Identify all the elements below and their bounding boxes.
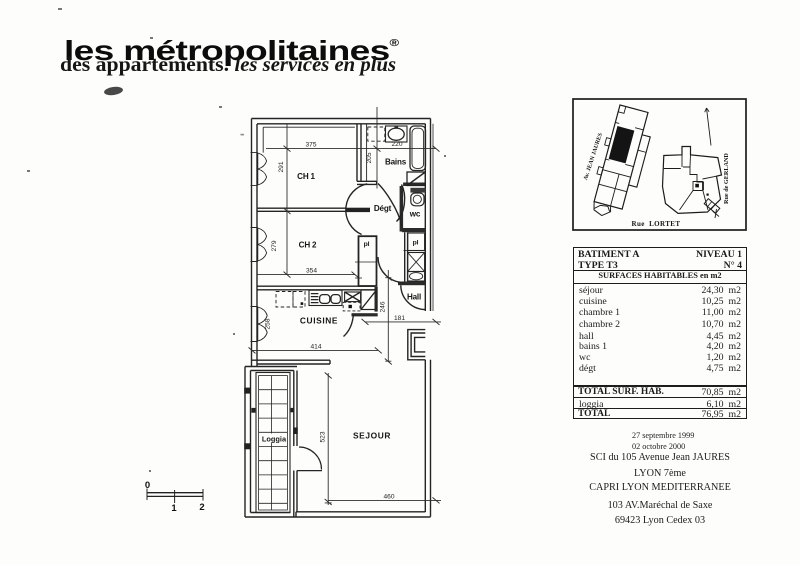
svg-text:pl: pl (364, 241, 370, 248)
svg-text:523: 523 (320, 431, 327, 442)
svg-text:wc: wc (409, 210, 421, 219)
svg-text:Dégt: Dégt (374, 204, 392, 213)
svg-text:SEJOUR: SEJOUR (353, 431, 391, 441)
svg-text:Hall: Hall (407, 293, 421, 302)
svg-text:CH 2: CH 2 (299, 241, 317, 250)
svg-text:460: 460 (383, 493, 394, 500)
svg-text:CUISINE: CUISINE (300, 316, 338, 326)
svg-text:Loggia: Loggia (262, 435, 287, 444)
svg-text:258: 258 (265, 318, 272, 329)
svg-text:246: 246 (380, 301, 387, 312)
svg-text:CH 1: CH 1 (297, 172, 315, 181)
svg-text:1: 1 (171, 503, 177, 514)
svg-text:354: 354 (306, 268, 317, 275)
svg-text:Bains: Bains (385, 158, 407, 167)
svg-text:2: 2 (199, 502, 204, 513)
svg-text:414: 414 (310, 343, 321, 350)
svg-text:220: 220 (391, 141, 402, 148)
svg-text:pl: pl (413, 240, 419, 247)
svg-text:181: 181 (394, 315, 405, 322)
svg-text:205: 205 (366, 152, 373, 163)
svg-text:279: 279 (271, 240, 278, 251)
svg-text:291: 291 (278, 161, 285, 172)
svg-text:375: 375 (305, 142, 316, 149)
svg-text:Rue de GERLAND: Rue de GERLAND (723, 153, 730, 204)
svg-text:Rue LORTET: Rue LORTET (632, 220, 681, 228)
svg-text:0: 0 (145, 480, 150, 491)
